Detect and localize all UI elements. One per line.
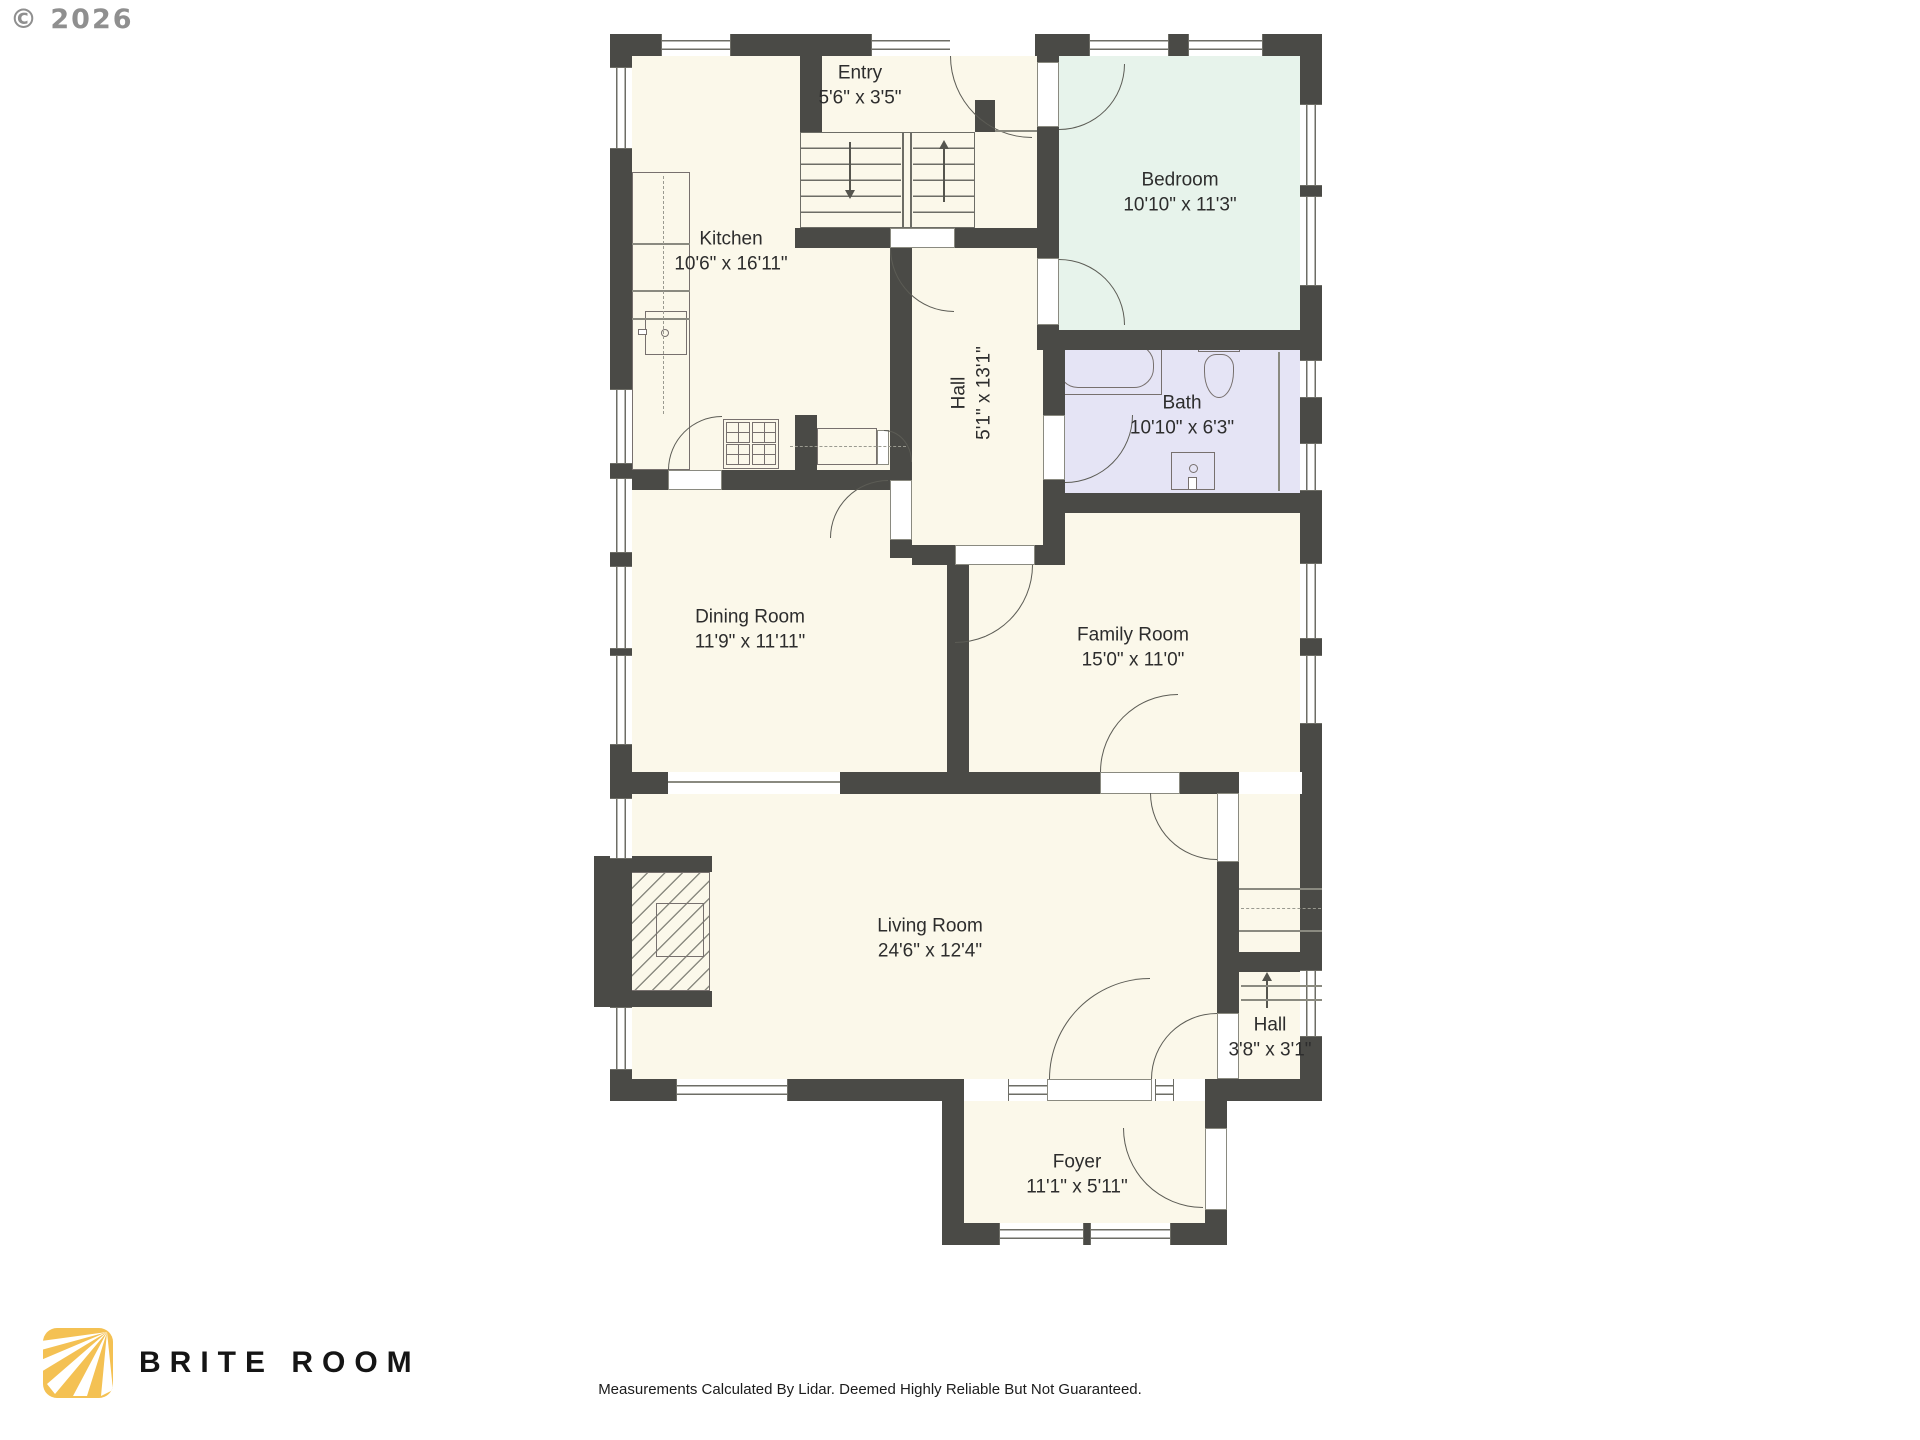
stair-up-arrowhead-icon — [1262, 972, 1272, 981]
wall — [632, 772, 668, 794]
window — [1090, 1223, 1171, 1245]
window — [610, 566, 632, 649]
brand-name: BRITE ROOM — [139, 1346, 421, 1380]
stair-down-arrowhead-icon — [845, 190, 855, 199]
brand-logo: BRITE ROOM — [43, 1328, 421, 1398]
fireplace-firebox-icon — [656, 903, 704, 957]
wall — [1217, 952, 1322, 972]
stair-down-arrow — [849, 142, 851, 192]
stair-up-arrow — [943, 148, 945, 202]
dashed-line — [663, 176, 666, 414]
wall — [1043, 480, 1065, 493]
floor-plan: Entry5'6" x 3'5" Kitchen10'6" x 16'11" B… — [0, 0, 1920, 1440]
room-label-bedroom: Bedroom10'10" x 11'3" — [1123, 168, 1236, 217]
room-label-hall-upper: Hall5'1" x 13'1" — [947, 346, 996, 440]
stair-up-arrowhead-icon — [939, 140, 949, 149]
dashed-line — [790, 446, 906, 449]
door-leaf — [1217, 793, 1239, 862]
wall — [795, 228, 890, 248]
wall — [1043, 513, 1065, 565]
window — [1300, 443, 1322, 491]
window — [999, 1223, 1084, 1245]
wall — [840, 772, 1100, 794]
wall-opening — [668, 772, 840, 794]
wall — [1180, 772, 1217, 794]
room-label-bath: Bath10'10" x 6'3" — [1130, 391, 1234, 440]
stair-treads — [801, 133, 901, 226]
wall — [1043, 350, 1065, 415]
detail-line — [632, 318, 690, 320]
window — [1008, 1079, 1049, 1101]
door-leaf — [1037, 62, 1059, 127]
stove-burner-icon — [726, 444, 750, 465]
wall — [1037, 127, 1059, 258]
door-leaf — [1037, 258, 1059, 325]
window — [1300, 655, 1322, 724]
detail-line — [995, 130, 1037, 132]
sunburst-icon — [43, 1328, 113, 1398]
wall — [1043, 493, 1322, 513]
wall-opening — [1239, 772, 1302, 794]
door-leaf — [1043, 415, 1065, 480]
window — [1300, 563, 1322, 639]
stove-burner-icon — [752, 422, 776, 443]
wall-opening — [950, 34, 1035, 56]
window — [1155, 1079, 1174, 1101]
wall — [955, 228, 1037, 248]
window — [610, 798, 632, 859]
stove-burner-icon — [726, 422, 750, 443]
door-leaf — [1205, 1128, 1227, 1210]
window — [610, 478, 632, 553]
window — [610, 67, 632, 149]
window — [1300, 360, 1322, 398]
dashed-line — [1241, 908, 1321, 911]
room-label-living-room: Living Room24'6" x 12'4" — [877, 914, 983, 963]
window — [1089, 34, 1169, 56]
window — [610, 1007, 632, 1070]
wall — [1302, 772, 1322, 794]
room-label-hall-lower: Hall3'8" x 3'1" — [1228, 1013, 1311, 1062]
window — [610, 389, 632, 464]
door-leaf — [1100, 772, 1180, 794]
detail-line — [632, 290, 690, 292]
wall — [942, 1079, 964, 1245]
detail-line — [1239, 888, 1322, 890]
detail-line — [668, 781, 840, 783]
wall — [890, 540, 912, 558]
bath-sink-drain-icon — [1189, 464, 1198, 473]
window — [661, 34, 731, 56]
door-leaf — [890, 228, 955, 248]
door-leaf — [890, 480, 912, 540]
wall — [1217, 862, 1239, 1013]
window — [1300, 104, 1322, 186]
stair-divider — [902, 132, 904, 228]
room-label-family-room: Family Room15'0" x 11'0" — [1077, 623, 1189, 672]
window — [871, 34, 951, 56]
room-label-entry: Entry5'6" x 3'5" — [818, 61, 901, 110]
window — [1300, 196, 1322, 286]
room-label-foyer: Foyer11'1" x 5'11" — [1026, 1150, 1127, 1199]
wall — [594, 991, 712, 1007]
detail-line — [1278, 352, 1280, 491]
page: © 2026 — [0, 0, 1920, 1440]
detail-line — [1241, 985, 1322, 987]
detail-line — [1241, 999, 1322, 1001]
wall — [594, 856, 612, 1007]
wall — [1217, 772, 1239, 793]
wall — [795, 415, 817, 470]
window — [1188, 34, 1263, 56]
wall — [1217, 1079, 1322, 1101]
bath-sink-tap-icon — [1188, 477, 1197, 490]
stove-burner-icon — [752, 444, 776, 465]
door-leaf — [1047, 1079, 1152, 1101]
door-leaf — [668, 470, 722, 490]
window — [676, 1079, 788, 1101]
wall — [632, 470, 668, 490]
detail-line — [1239, 930, 1322, 932]
room-label-dining-room: Dining Room11'9" x 11'11" — [695, 605, 806, 654]
wall — [1037, 330, 1322, 350]
stair-divider — [910, 132, 912, 228]
wall — [942, 1223, 1227, 1245]
door-leaf — [955, 545, 1035, 565]
window — [610, 655, 632, 745]
disclaimer: Measurements Calculated By Lidar. Deemed… — [560, 1381, 1180, 1398]
bathtub-basin-icon — [1058, 344, 1154, 388]
room-label-kitchen: Kitchen10'6" x 16'11" — [674, 227, 787, 276]
sink-handle-icon — [638, 329, 647, 335]
